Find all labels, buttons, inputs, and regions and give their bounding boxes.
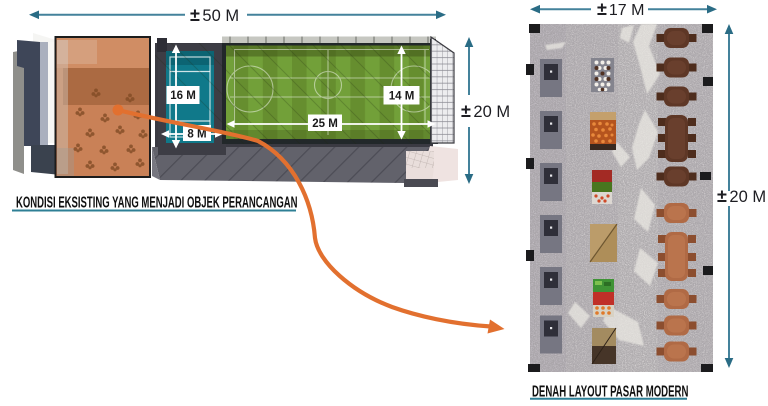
svg-text:14 M: 14 M bbox=[389, 91, 415, 103]
svg-text:±20 M: ±20 M bbox=[461, 101, 510, 121]
svg-text:25 M: 25 M bbox=[312, 118, 338, 130]
svg-text:±50 M: ±50 M bbox=[190, 5, 239, 25]
svg-text:±17 M: ±17 M bbox=[597, 0, 644, 19]
svg-text:16 M: 16 M bbox=[170, 90, 196, 102]
svg-text:KONDISI EKSISTING YANG MENJADI: KONDISI EKSISTING YANG MENJADI OBJEK PER… bbox=[16, 193, 298, 211]
svg-text:DENAH LAYOUT PASAR MODERN: DENAH LAYOUT PASAR MODERN bbox=[532, 382, 688, 400]
svg-text:±20 M: ±20 M bbox=[717, 186, 766, 206]
